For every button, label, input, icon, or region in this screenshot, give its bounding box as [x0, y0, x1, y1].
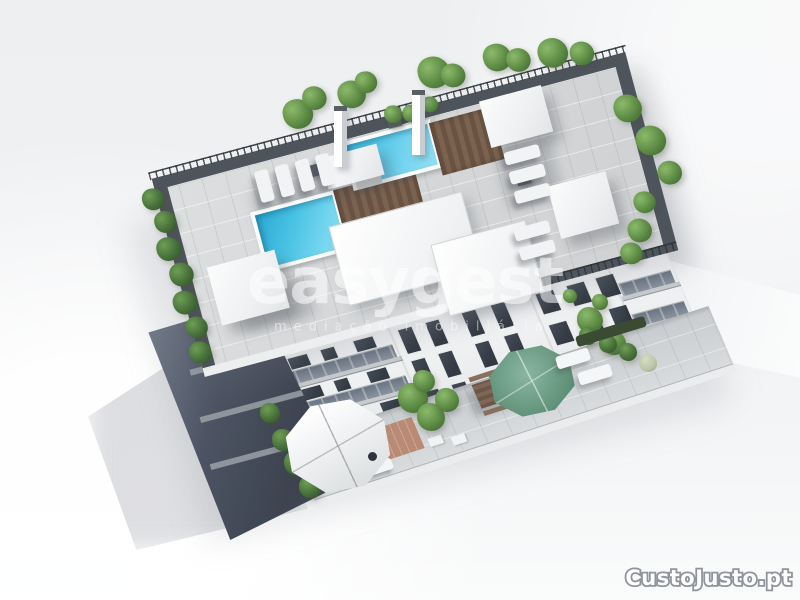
- sun-lounger: [294, 158, 316, 193]
- planter-box: [427, 435, 444, 448]
- site-logo-text: CustoJusto.pt: [625, 566, 792, 590]
- chimney: [412, 90, 425, 155]
- facade-window: [396, 326, 422, 356]
- tree: [260, 403, 280, 423]
- facade-window: [547, 320, 576, 347]
- render-canvas: easygest mediação imobiliária CustoJusto…: [0, 0, 800, 600]
- tree: [435, 388, 459, 412]
- parasol-pole: [368, 452, 377, 461]
- planter-box: [451, 433, 468, 446]
- tree: [592, 294, 608, 310]
- tree: [413, 370, 435, 392]
- tree: [563, 289, 577, 303]
- facade-window: [473, 339, 499, 369]
- facade-window: [489, 301, 515, 331]
- tree: [625, 216, 654, 245]
- tree: [639, 354, 657, 372]
- tree: [619, 343, 637, 361]
- chimney: [334, 106, 347, 167]
- sun-lounger: [508, 163, 546, 185]
- watermark-site-logo: CustoJusto.pt: [616, 558, 800, 596]
- sun-lounger: [274, 163, 296, 198]
- sun-lounger: [518, 239, 556, 261]
- facade-window: [437, 349, 463, 379]
- facade-window: [424, 318, 450, 348]
- facade-window: [460, 308, 486, 338]
